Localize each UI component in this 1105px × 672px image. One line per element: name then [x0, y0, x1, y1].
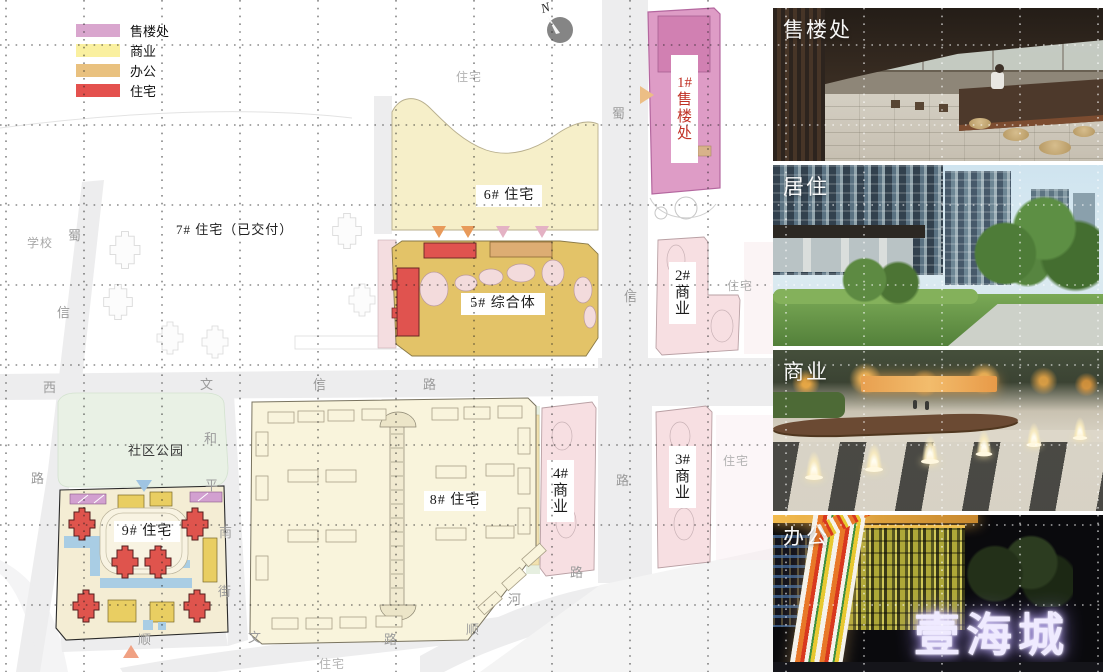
- photo1-cushion: [1073, 126, 1095, 137]
- photo3-caption: 商业: [783, 356, 829, 386]
- legend-swatch: [76, 64, 120, 77]
- north-compass: [547, 15, 573, 43]
- photo2-small-tree: [831, 251, 927, 309]
- photo2-canopy: [773, 225, 925, 238]
- block-5-complex: [378, 240, 598, 356]
- photo-commercial-plaza: 商业: [773, 350, 1103, 511]
- block-3-commercial: [656, 406, 773, 568]
- photo2-caption: 居住: [783, 171, 829, 201]
- legend-swatch: [76, 24, 120, 37]
- community-park: [58, 393, 228, 487]
- photo3-fountain-jet: [805, 442, 823, 478]
- block-1-sales-office: [648, 8, 720, 219]
- site-plan-drawing: .cross-red{fill:#df544d;stroke:#531d1d;s…: [0, 0, 773, 672]
- photo3-person: [913, 400, 917, 409]
- legend-label: 售楼处: [130, 21, 169, 40]
- photo1-cushion: [969, 118, 991, 129]
- photo4-ground: [773, 662, 1103, 672]
- photo3-fountain-jet: [1073, 410, 1087, 439]
- block-9-residential: [56, 486, 228, 640]
- photo4-project-sign: 壹海城: [885, 599, 1099, 665]
- photo3-fountain-jet: [976, 421, 993, 454]
- photo1-caption: 售楼处: [783, 14, 852, 44]
- legend-label: 办公: [130, 61, 156, 80]
- photo-sales-office: 售楼处: [773, 8, 1103, 161]
- photo-office-night: 壹海城 办公: [773, 515, 1103, 672]
- photo4-tree-silhouette: [953, 533, 1073, 607]
- legend-label: 商业: [130, 41, 156, 60]
- legend-item: 住宅: [76, 80, 169, 100]
- legend-item: 办公: [76, 60, 169, 80]
- block-8-residential: [250, 398, 546, 644]
- photo3-person: [925, 401, 929, 410]
- photo-residential: 居住: [773, 165, 1103, 346]
- photo3-storefront-glow: [861, 376, 997, 392]
- photo2-trees: [969, 189, 1099, 293]
- photo3-fountain-jet: [921, 426, 939, 462]
- photo3-fountain-jet: [1026, 415, 1041, 446]
- block-6-residential: [392, 99, 598, 230]
- legend-swatch: [76, 44, 120, 57]
- legend-swatch: [76, 84, 120, 97]
- photo1-stool: [939, 104, 948, 112]
- legend-label: 住宅: [130, 81, 156, 100]
- photo1-stool: [891, 100, 900, 108]
- photo1-stool: [915, 102, 924, 110]
- map-legend: 售楼处商业办公住宅: [76, 20, 169, 100]
- legend-item: 售楼处: [76, 20, 169, 40]
- photo1-cushion: [1039, 140, 1071, 155]
- master-plan-page: .cross-red{fill:#df544d;stroke:#531d1d;s…: [0, 0, 1105, 672]
- photo3-fountain-jet: [865, 434, 883, 470]
- photo1-person: [991, 72, 1004, 89]
- photo4-caption: 办公: [783, 521, 829, 551]
- photo3-lawn: [773, 392, 845, 418]
- block-2-commercial: [656, 237, 773, 355]
- photo1-cushion: [1003, 128, 1029, 141]
- photo1-person-head: [995, 64, 1004, 73]
- legend-item: 商业: [76, 40, 169, 60]
